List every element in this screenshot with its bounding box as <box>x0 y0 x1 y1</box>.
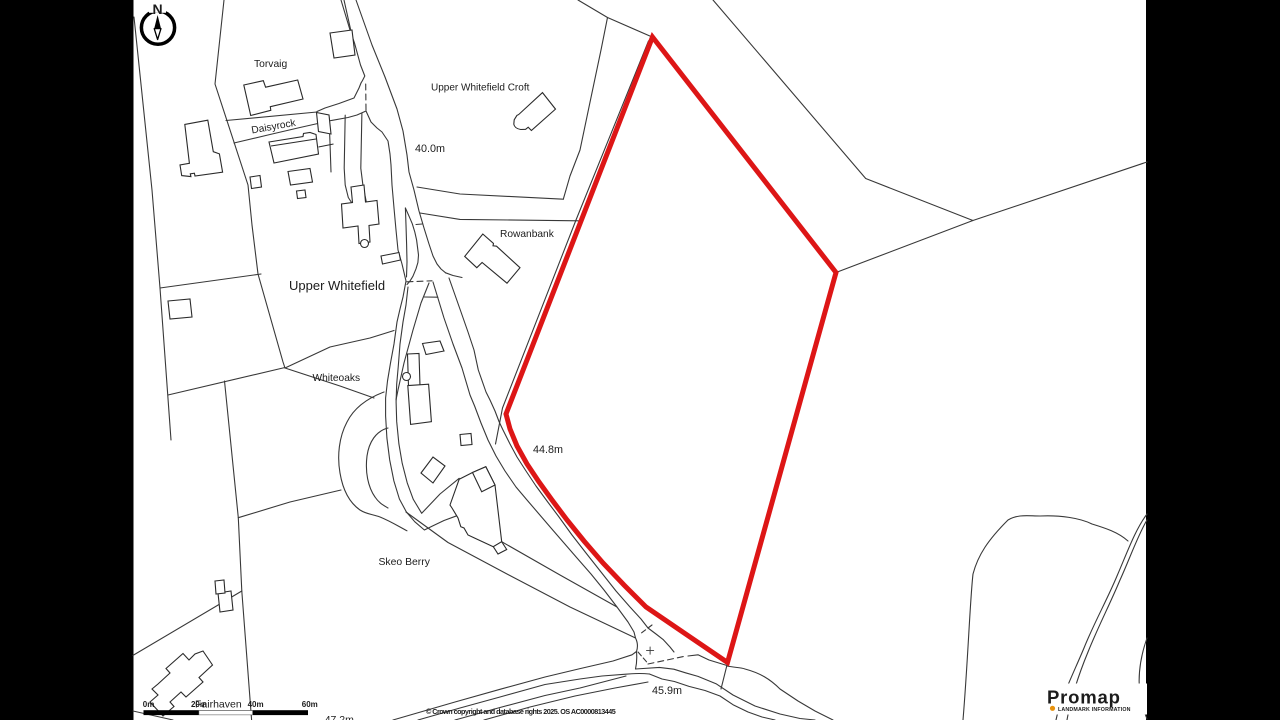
svg-text:40m: 40m <box>248 700 264 709</box>
svg-text:Whiteoaks: Whiteoaks <box>313 373 361 384</box>
svg-text:Skeo Berry: Skeo Berry <box>379 557 431 568</box>
svg-text:45.9m: 45.9m <box>652 685 682 697</box>
svg-text:Promap: Promap <box>1047 687 1121 708</box>
svg-text:0m: 0m <box>143 700 155 709</box>
svg-text:47.2m: 47.2m <box>325 714 354 720</box>
svg-text:LANDMARK INFORMATION: LANDMARK INFORMATION <box>1058 707 1131 713</box>
svg-text:60m: 60m <box>302 700 318 709</box>
svg-text:Upper Whitefield Croft: Upper Whitefield Croft <box>431 83 530 94</box>
svg-text:Upper Whitefield: Upper Whitefield <box>289 278 385 293</box>
svg-text:Rowanbank: Rowanbank <box>500 229 555 240</box>
svg-text:44.8m: 44.8m <box>533 444 563 456</box>
svg-text:© Crown copyright and database: © Crown copyright and database rights 20… <box>426 707 616 716</box>
svg-text:Fairhaven: Fairhaven <box>195 699 242 711</box>
svg-text:Torvaig: Torvaig <box>254 59 287 70</box>
svg-text:40.0m: 40.0m <box>415 143 445 155</box>
svg-text:N: N <box>152 1 162 17</box>
